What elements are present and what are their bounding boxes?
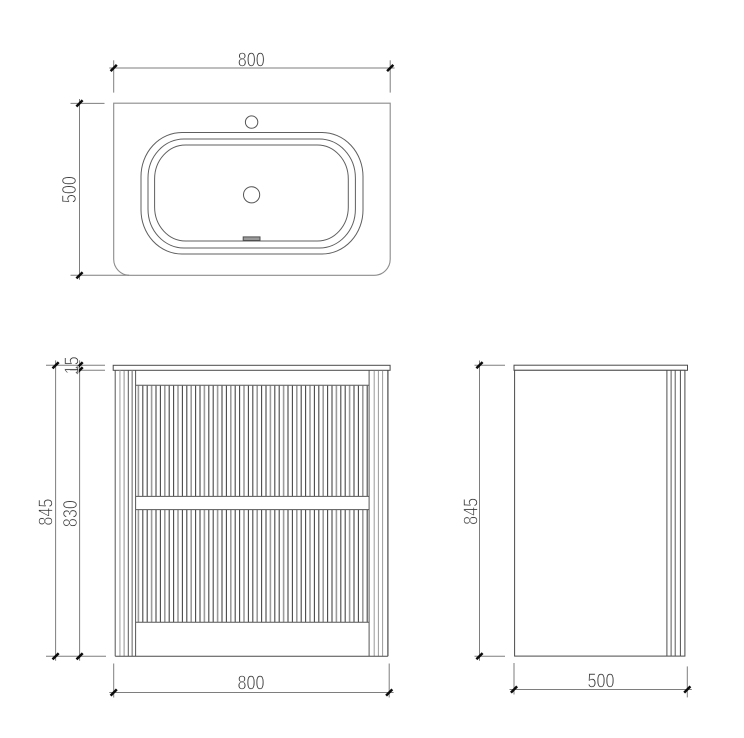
- svg-text:845: 845: [458, 498, 481, 525]
- svg-text:500: 500: [588, 669, 615, 692]
- svg-text:15: 15: [60, 356, 83, 374]
- svg-text:800: 800: [238, 47, 265, 70]
- svg-text:845: 845: [34, 499, 57, 526]
- svg-text:500: 500: [57, 176, 80, 203]
- svg-text:830: 830: [58, 500, 81, 527]
- svg-text:800: 800: [238, 671, 265, 694]
